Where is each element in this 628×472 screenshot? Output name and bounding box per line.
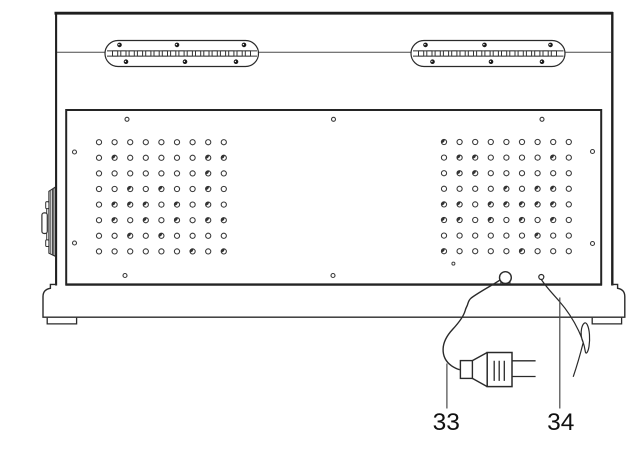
svg-text:34: 34 bbox=[547, 409, 574, 436]
svg-text:33: 33 bbox=[433, 409, 460, 436]
